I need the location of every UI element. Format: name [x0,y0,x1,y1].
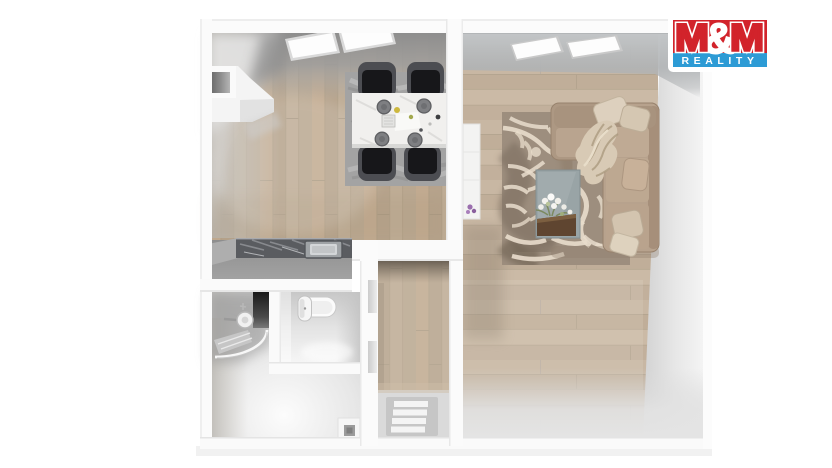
svg-text:M: M [730,18,764,60]
svg-text:REALITY: REALITY [681,55,758,67]
svg-text:M: M [675,18,709,60]
